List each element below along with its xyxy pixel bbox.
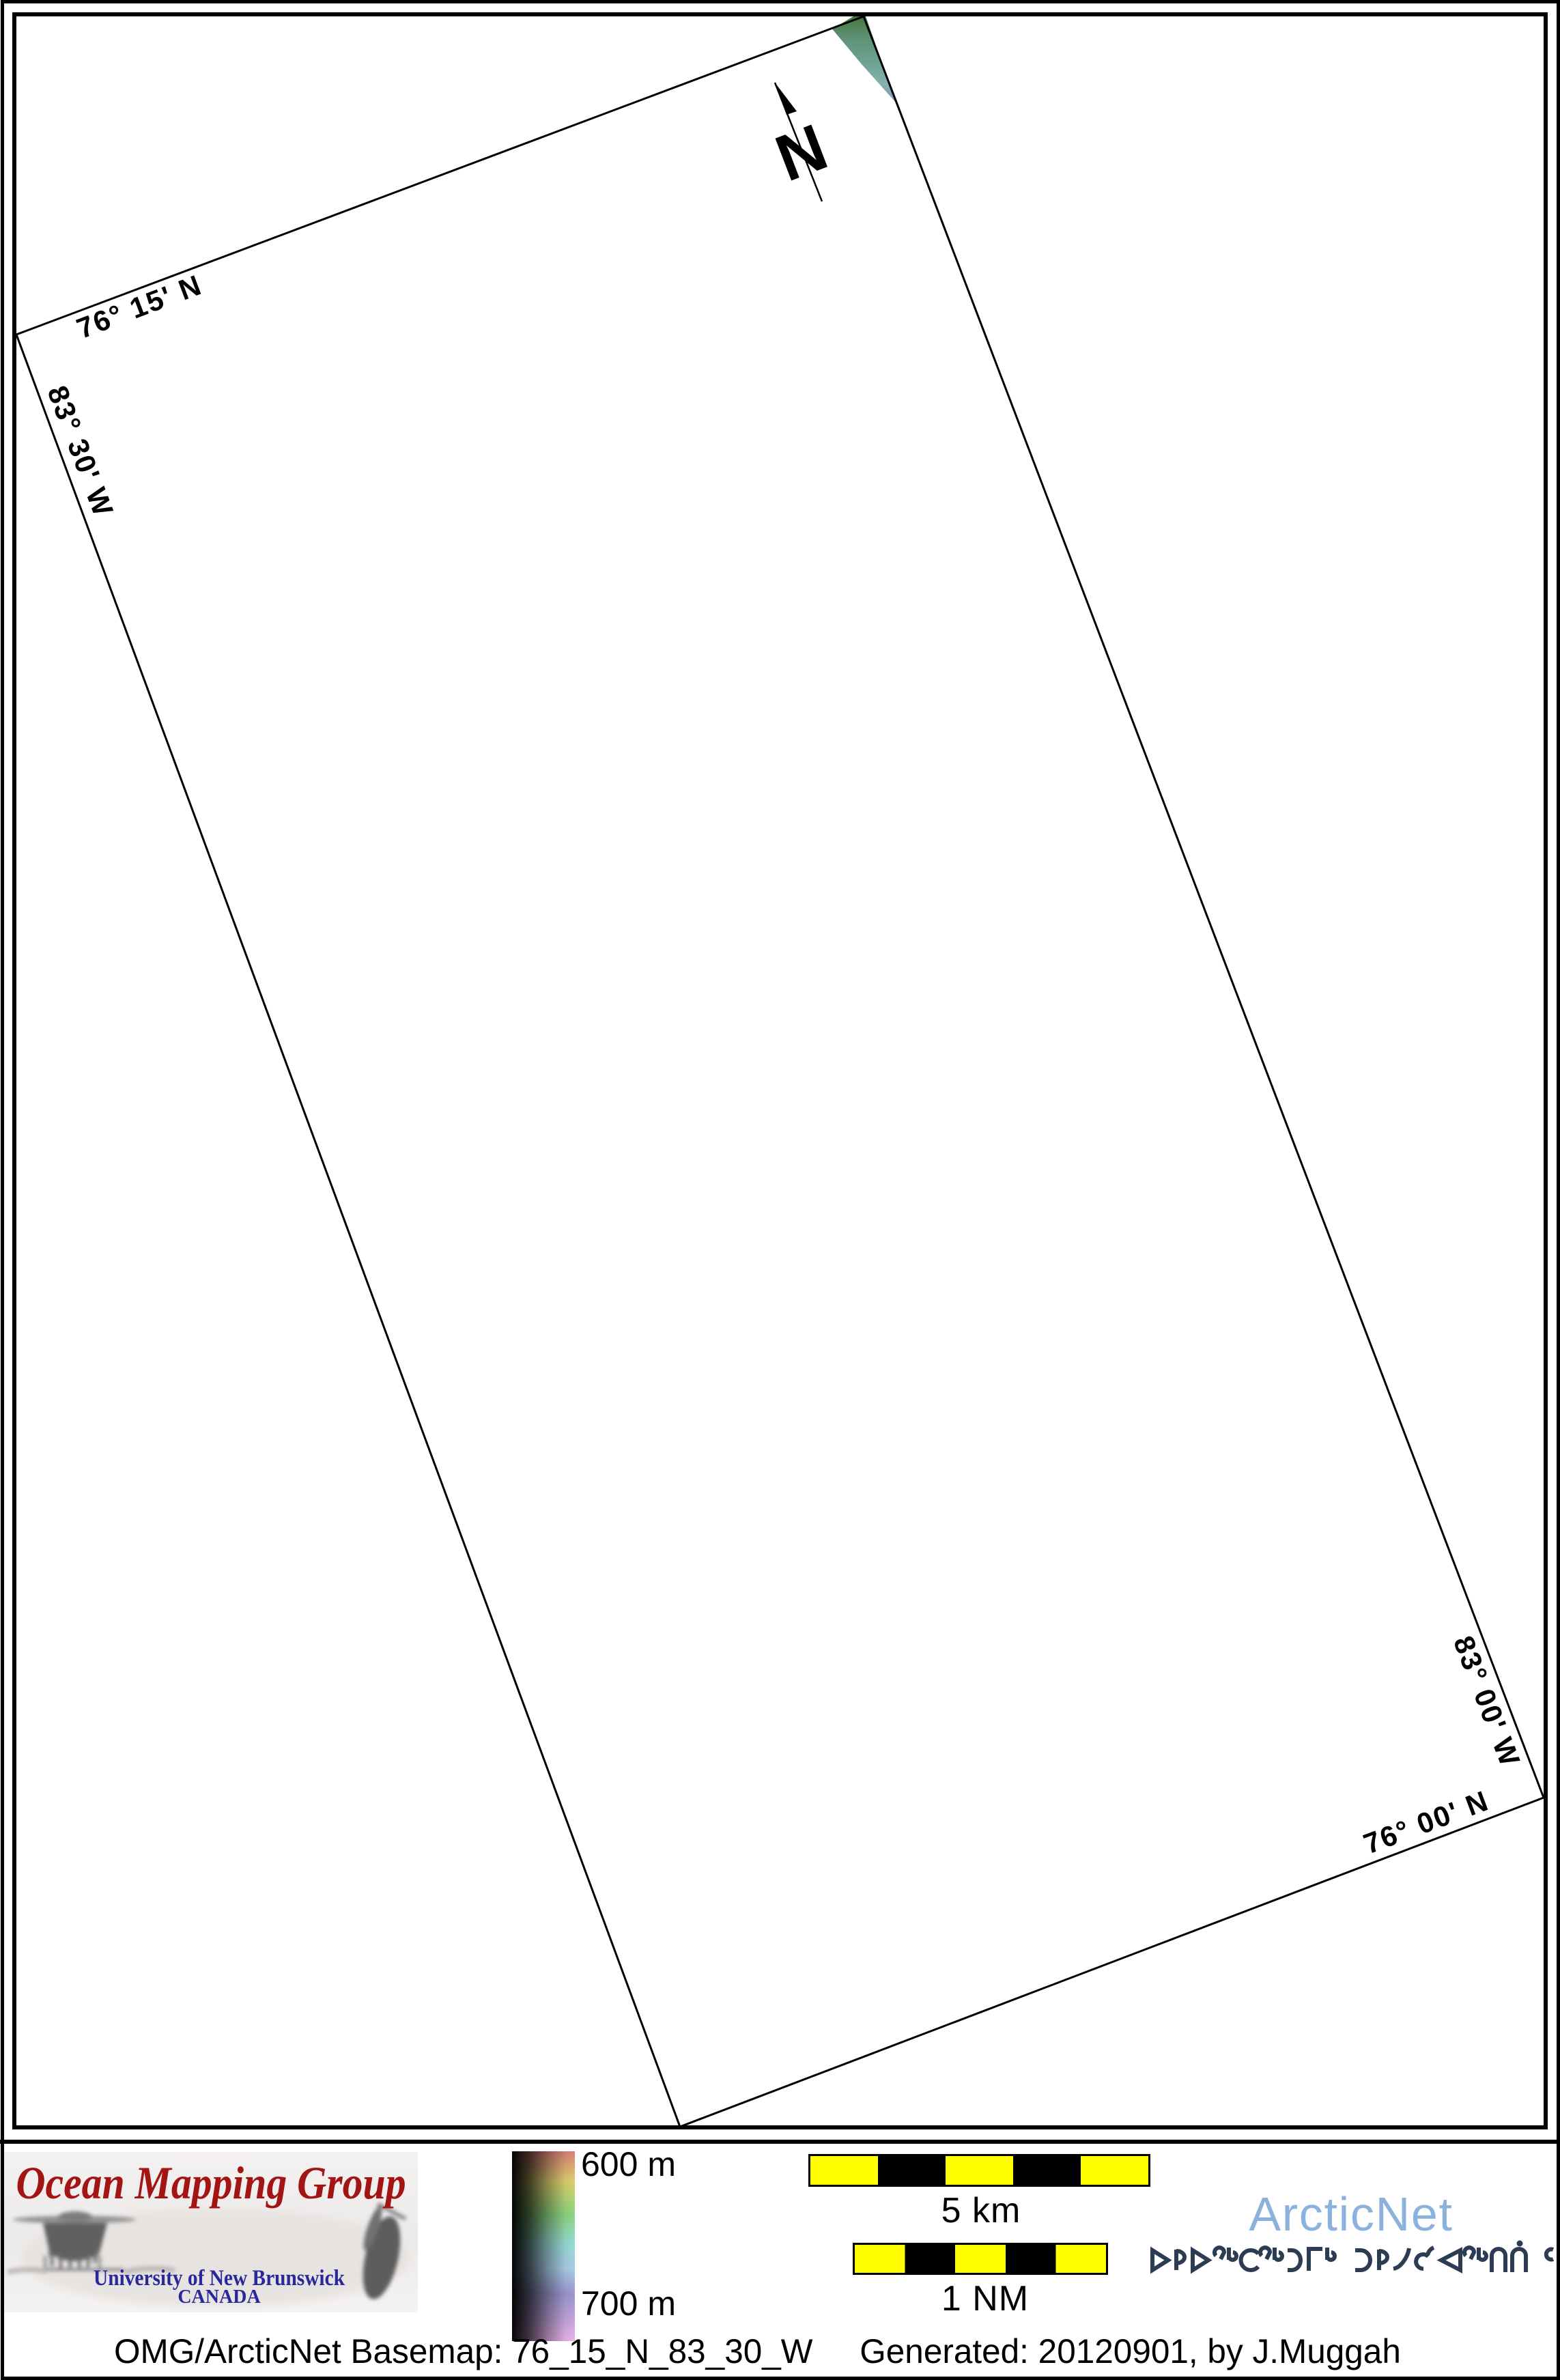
svg-text:83° 00' W: 83° 00' W [1447,1632,1527,1772]
svg-text:83° 30' W: 83° 30' W [41,382,119,522]
svg-text:N: N [766,111,836,196]
svg-text:76° 15' N: 76° 15' N [72,268,206,345]
svg-text:76° 00' N: 76° 00' N [1359,1784,1493,1860]
